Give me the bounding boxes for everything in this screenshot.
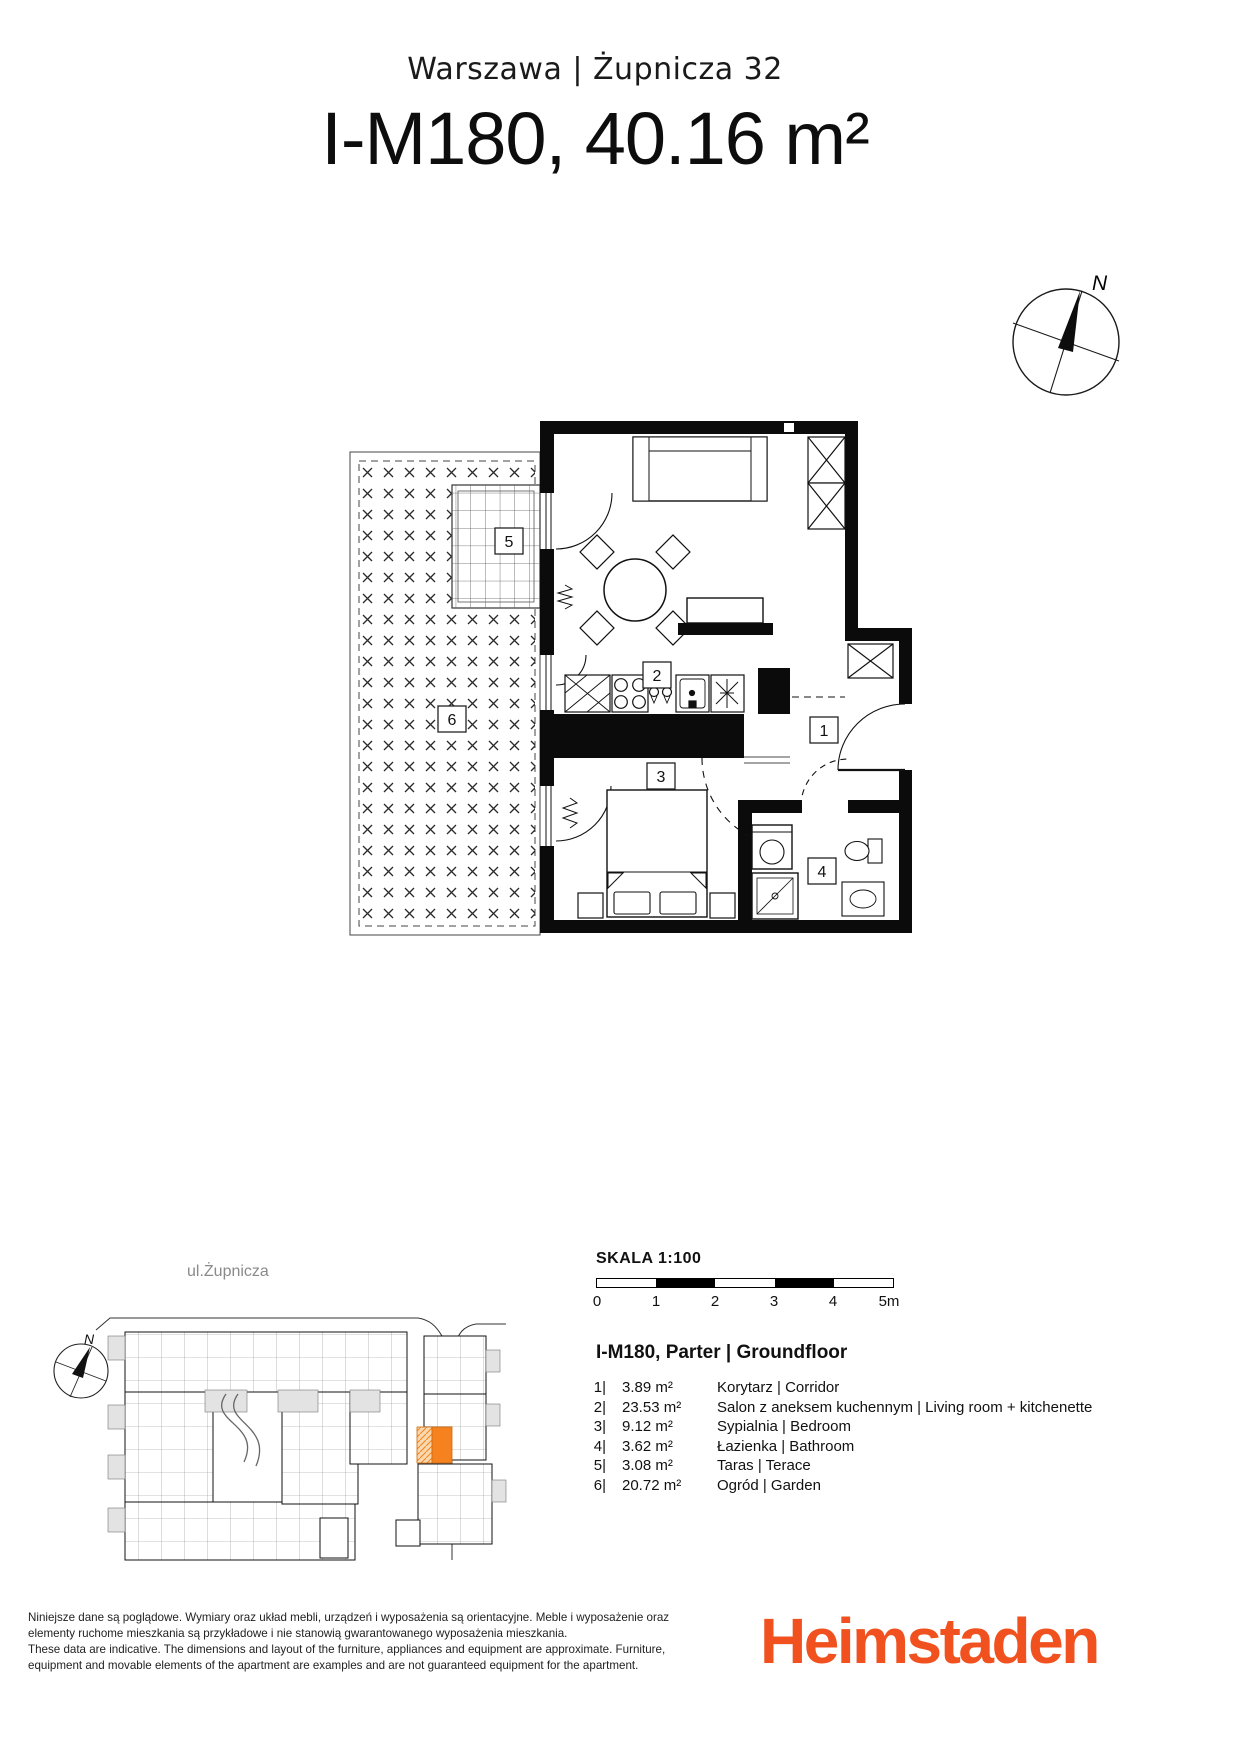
heimstaden-logo: Heimstaden bbox=[760, 1604, 1160, 1678]
scale-bar bbox=[596, 1278, 894, 1288]
site-compass-icon: N bbox=[54, 1331, 108, 1398]
room-name: Ogród | Garden bbox=[717, 1476, 821, 1496]
highlighted-unit bbox=[417, 1427, 452, 1463]
room-row: 4| 3.62 m² Łazienka | Bathroom bbox=[580, 1437, 1140, 1457]
scale-segment bbox=[656, 1279, 715, 1287]
room-label-1: 1 bbox=[820, 723, 829, 740]
unit-heading: I-M180, Parter | Groundfloor bbox=[596, 1342, 847, 1364]
dining-table-set bbox=[580, 535, 690, 645]
compass-n-label: N bbox=[1092, 272, 1108, 295]
disclaimer: Niniejsze dane są poglądowe. Wymiary ora… bbox=[28, 1610, 676, 1674]
room-area: 3.89 m² bbox=[622, 1378, 673, 1398]
room-number: 2| bbox=[580, 1398, 606, 1418]
wall-notch bbox=[784, 423, 794, 432]
washbasin-icon bbox=[842, 882, 884, 916]
floorplan-page: Warszawa | Żupnicza 32 I-M180, 40.16 m² … bbox=[0, 0, 1240, 1755]
scale-tick: 3 bbox=[770, 1293, 778, 1310]
scale-tick: 1 bbox=[652, 1293, 660, 1310]
disclaimer-line: Niniejsze dane są poglądowe. Wymiary ora… bbox=[28, 1610, 676, 1626]
room-row: 1| 3.89 m² Korytarz | Corridor bbox=[580, 1378, 1140, 1398]
apartment-floor-plan: 1 2 3 4 5 6 bbox=[330, 400, 930, 960]
site-plan: ul.Żupnicza bbox=[40, 1245, 510, 1575]
room-row: 2| 23.53 m² Salon z aneksem kuchennym | … bbox=[580, 1398, 1140, 1418]
room-row: 6| 20.72 m² Ogród | Garden bbox=[580, 1476, 1140, 1496]
room-number: 6| bbox=[580, 1476, 606, 1496]
room-area: 23.53 m² bbox=[622, 1398, 681, 1418]
scale-segment bbox=[715, 1279, 774, 1287]
compass-icon: N bbox=[990, 250, 1150, 415]
disclaimer-line: equipment and movable elements of the ap… bbox=[28, 1658, 676, 1674]
room-name: Łazienka | Bathroom bbox=[717, 1437, 854, 1457]
window-glazing bbox=[546, 493, 551, 846]
room-number: 1| bbox=[580, 1378, 606, 1398]
room-area: 20.72 m² bbox=[622, 1476, 681, 1496]
scale-segment bbox=[597, 1279, 656, 1287]
pendant-lamp-icon bbox=[650, 688, 672, 704]
washing-machine-icon bbox=[752, 825, 792, 869]
room-area: 9.12 m² bbox=[622, 1417, 673, 1437]
scale-segment bbox=[834, 1279, 893, 1287]
scale-tick: 4 bbox=[829, 1293, 837, 1310]
toilet-icon bbox=[845, 839, 882, 863]
scale-tick: 0 bbox=[593, 1293, 601, 1310]
scale-tick: 2 bbox=[711, 1293, 719, 1310]
scale-heading: SKALA 1:100 bbox=[596, 1250, 701, 1268]
room-row: 5| 3.08 m² Taras | Terace bbox=[580, 1456, 1140, 1476]
room-area: 3.62 m² bbox=[622, 1437, 673, 1457]
room-name: Korytarz | Corridor bbox=[717, 1378, 839, 1398]
room-list: 1| 3.89 m² Korytarz | Corridor 2| 23.53 … bbox=[580, 1378, 1140, 1495]
scale-segment bbox=[775, 1279, 834, 1287]
disclaimer-line: elementy ruchome mieszkania są przykłado… bbox=[28, 1626, 676, 1642]
room-name: Salon z aneksem kuchennym | Living room … bbox=[717, 1398, 1092, 1418]
room-name: Taras | Terace bbox=[717, 1456, 811, 1476]
disclaimer-line: These data are indicative. The dimension… bbox=[28, 1642, 676, 1658]
shower-icon bbox=[752, 873, 798, 919]
page-title: I-M180, 40.16 m² bbox=[0, 98, 1190, 179]
street-label: ul.Żupnicza bbox=[187, 1261, 269, 1280]
scale-tick: 5m bbox=[879, 1293, 900, 1310]
room-name: Sypialnia | Bedroom bbox=[717, 1417, 851, 1437]
bed bbox=[607, 790, 707, 917]
room-label-3: 3 bbox=[657, 769, 666, 786]
room-label-4: 4 bbox=[818, 864, 827, 881]
site-compass-n-label: N bbox=[84, 1331, 95, 1347]
room-label-6: 6 bbox=[448, 712, 457, 729]
room-label-5: 5 bbox=[505, 534, 514, 551]
room-number: 4| bbox=[580, 1437, 606, 1457]
room-row: 3| 9.12 m² Sypialnia | Bedroom bbox=[580, 1417, 1140, 1437]
room-number: 5| bbox=[580, 1456, 606, 1476]
location-line: Warszawa | Żupnicza 32 bbox=[0, 52, 1190, 87]
tv-bench bbox=[678, 598, 773, 635]
scale-ticks: 0 1 2 3 4 5m bbox=[596, 1293, 896, 1313]
room-area: 3.08 m² bbox=[622, 1456, 673, 1476]
room-label-2: 2 bbox=[653, 668, 662, 685]
room-number: 3| bbox=[580, 1417, 606, 1437]
sofa bbox=[633, 437, 767, 501]
